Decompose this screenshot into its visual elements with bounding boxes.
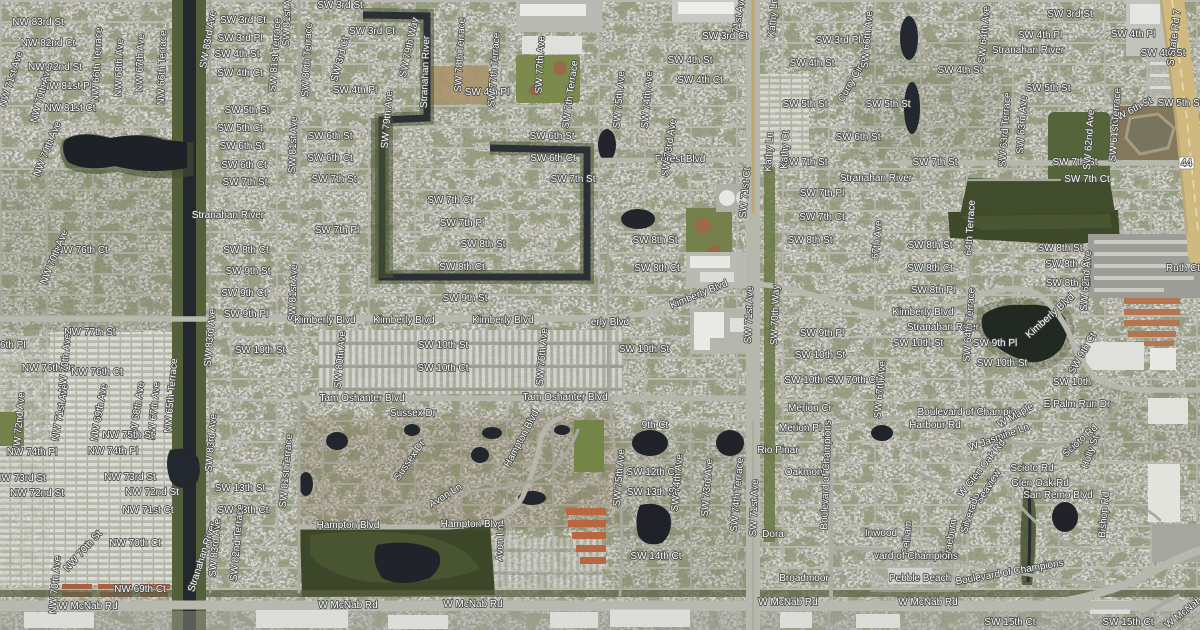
svg-text:SW 70th Ct: SW 70th Ct: [827, 375, 878, 386]
svg-text:SW 3rd Ct: SW 3rd Ct: [220, 15, 266, 26]
svg-text:SW 4th St: SW 4th St: [789, 58, 834, 69]
svg-text:Kimberly Blvd: Kimberly Blvd: [373, 315, 434, 326]
svg-text:SW 5th St: SW 5th St: [1025, 83, 1070, 94]
svg-text:NW 82nd Ct: NW 82nd Ct: [21, 38, 76, 49]
svg-text:NW 68th Ave: NW 68th Ave: [113, 38, 126, 97]
svg-text:Merion Pl: Merion Pl: [779, 423, 821, 434]
svg-text:SW 70th Way: SW 70th Way: [769, 284, 782, 345]
svg-text:Harbour Rd: Harbour Rd: [909, 420, 961, 431]
svg-text:SW 15th Ct: SW 15th Ct: [1102, 617, 1153, 628]
svg-text:SW 71st Ave: SW 71st Ave: [743, 286, 756, 344]
svg-text:SW 5th St: SW 5th St: [1157, 98, 1200, 109]
svg-text:76th Pl: 76th Pl: [0, 340, 26, 351]
svg-text:W McNab Rd: W McNab Rd: [898, 597, 957, 608]
svg-text:NW 72nd St: NW 72nd St: [10, 488, 64, 499]
svg-text:SW 6th Ct: SW 6th Ct: [530, 153, 576, 164]
svg-text:NW 74th Pl: NW 74th Pl: [88, 446, 139, 457]
svg-text:Tam Oshanter Blvd: Tam Oshanter Blvd: [319, 393, 404, 404]
svg-text:Glen Oak Rd: Glen Oak Rd: [1011, 478, 1069, 489]
svg-text:SW 4th Pl: SW 4th Pl: [1018, 30, 1062, 41]
svg-text:NW 71st Ct: NW 71st Ct: [122, 505, 173, 516]
svg-text:SW 5th St: SW 5th St: [782, 99, 827, 110]
svg-text:NW 72nd St: NW 72nd St: [125, 487, 179, 498]
svg-text:Kathy Ct: Kathy Ct: [779, 130, 792, 169]
svg-text:SW 12th Ct: SW 12th Ct: [626, 467, 677, 478]
svg-text:Stranahan River: Stranahan River: [840, 173, 913, 184]
svg-text:erly Blvd: erly Blvd: [591, 317, 629, 328]
svg-text:W McNab Rd: W McNab Rd: [758, 597, 817, 608]
svg-text:W McNab Rd: W McNab Rd: [58, 601, 117, 612]
svg-text:NW 83rd St: NW 83rd St: [12, 17, 64, 28]
svg-text:SW 8th Pl: SW 8th Pl: [911, 285, 955, 296]
svg-text:W McNab Rd: W McNab Rd: [318, 600, 377, 611]
svg-text:SW 7th St: SW 7th St: [912, 157, 957, 168]
svg-text:NW 67th Ave: NW 67th Ave: [134, 33, 147, 92]
svg-text:SW 8th St: SW 8th St: [907, 240, 952, 251]
svg-text:SW 8th St: SW 8th St: [632, 235, 677, 246]
svg-text:NW 70th Ct: NW 70th Ct: [109, 538, 161, 549]
svg-text:Sussex Dr: Sussex Dr: [390, 408, 437, 419]
svg-text:SW 10th St: SW 10th St: [619, 344, 670, 355]
svg-text:Kimberly Blvd: Kimberly Blvd: [892, 307, 953, 318]
svg-text:SW 10th St: SW 10th St: [795, 350, 846, 361]
svg-text:Broadmoor: Broadmoor: [779, 573, 829, 584]
svg-text:SW 10th St: SW 10th St: [418, 340, 469, 351]
svg-text:NW 69th Ct: NW 69th Ct: [114, 584, 166, 595]
svg-text:SW 4th St: SW 4th St: [667, 55, 712, 66]
svg-text:Inwood: Inwood: [865, 528, 897, 539]
svg-text:SW 3rd Pl: SW 3rd Pl: [815, 35, 860, 46]
svg-text:SW 7th Pl: SW 7th Pl: [440, 218, 484, 229]
svg-text:SW 8th St: SW 8th St: [787, 235, 832, 246]
svg-text:SW 81st Ave: SW 81st Ave: [287, 264, 300, 322]
svg-text:SW 13th St: SW 13th St: [215, 483, 266, 494]
svg-text:SW 7th St: SW 7th St: [222, 177, 267, 188]
svg-text:SW 6th Ct: SW 6th Ct: [307, 153, 353, 164]
svg-text:SW 9th St: SW 9th St: [442, 293, 487, 304]
svg-text:SW 14th Ct: SW 14th Ct: [630, 551, 681, 562]
svg-text:SW 15th Ct: SW 15th Ct: [984, 617, 1035, 628]
svg-text:Kathy Ln: Kathy Ln: [763, 132, 776, 172]
svg-text:SW 9th Pl: SW 9th Pl: [973, 338, 1017, 349]
svg-text:SW 4th Pl: SW 4th Pl: [1111, 29, 1155, 40]
svg-text:SW 4th Ct: SW 4th Ct: [677, 75, 723, 86]
svg-text:SW 7th Pl: SW 7th Pl: [800, 188, 844, 199]
svg-text:SW 9th Pl: SW 9th Pl: [224, 309, 268, 320]
svg-text:SW 10th St: SW 10th St: [893, 338, 944, 349]
svg-text:SW 3rd St: SW 3rd St: [1047, 9, 1093, 20]
svg-text:SW 7th St: SW 7th St: [311, 174, 356, 185]
svg-text:Dora: Dora: [762, 529, 784, 540]
svg-text:NW 75th St: NW 75th St: [102, 430, 153, 441]
svg-text:Scioto Rd: Scioto Rd: [1010, 463, 1053, 474]
svg-text:Hampton Blvd: Hampton Blvd: [317, 520, 380, 531]
svg-text:SW 3rd Ct: SW 3rd Ct: [349, 26, 395, 37]
svg-text:SW 9th Pl: SW 9th Pl: [800, 328, 844, 339]
svg-text:SW 9th St: SW 9th St: [225, 266, 270, 277]
svg-text:SW 6th St: SW 6th St: [529, 131, 574, 142]
svg-text:NW 73rd St: NW 73rd St: [104, 472, 156, 483]
svg-text:SW 8th St: SW 8th St: [460, 239, 505, 250]
svg-text:E Palm Run Dr: E Palm Run Dr: [1044, 399, 1111, 410]
svg-text:SW 4th St: SW 4th St: [214, 49, 259, 60]
svg-text:vard of Champions: vard of Champions: [874, 551, 958, 562]
svg-text:SW 8th Ct: SW 8th Ct: [907, 263, 953, 274]
svg-text:44: 44: [1181, 158, 1193, 169]
svg-text:Kimberly Blvd: Kimberly Blvd: [472, 315, 533, 326]
svg-text:Hampton Blvd: Hampton Blvd: [441, 519, 504, 530]
svg-text:Tam Oshanter Blvd: Tam Oshanter Blvd: [522, 392, 607, 403]
svg-text:SW 9th Ct: SW 9th Ct: [221, 288, 267, 299]
svg-text:SW 6th St: SW 6th St: [219, 141, 264, 152]
svg-text:Kimberly Blvd: Kimberly Blvd: [294, 315, 355, 326]
svg-text:SW 3rd St: SW 3rd St: [317, 0, 363, 11]
svg-text:SW 81st Ave: SW 81st Ave: [287, 116, 300, 174]
svg-text:SW 6th Ct: SW 6th Ct: [221, 160, 267, 171]
svg-text:SW 8th Ct: SW 8th Ct: [439, 262, 485, 273]
svg-text:SW 7th Ct: SW 7th Ct: [1064, 174, 1110, 185]
svg-text:NW 73rd St: NW 73rd St: [0, 473, 46, 484]
svg-text:SW 5th St: SW 5th St: [865, 99, 910, 110]
svg-text:Stranahan River: Stranahan River: [192, 210, 265, 221]
svg-text:SW 8th St: SW 8th St: [1037, 243, 1082, 254]
svg-text:NW 76th Ct: NW 76th Ct: [71, 367, 123, 378]
svg-text:SW 4th St: SW 4th St: [1140, 48, 1185, 59]
svg-text:SW 5th St: SW 5th St: [224, 105, 269, 116]
svg-text:SW 71st Ave: SW 71st Ave: [748, 479, 761, 537]
svg-text:Rio Pinar: Rio Pinar: [757, 445, 799, 456]
svg-text:Merion Cr: Merion Cr: [788, 403, 833, 414]
svg-text:SW 3rd Pl: SW 3rd Pl: [217, 33, 262, 44]
svg-text:Oakmont: Oakmont: [785, 467, 826, 478]
svg-text:SW 6th St: SW 6th St: [835, 132, 880, 143]
svg-text:SW 10th St: SW 10th St: [235, 345, 286, 356]
svg-text:SW 7th Ct: SW 7th Ct: [427, 195, 473, 206]
svg-text:Avon Ln: Avon Ln: [494, 524, 506, 561]
svg-text:San Remo Blvd: San Remo Blvd: [1023, 490, 1092, 501]
svg-text:SW 4th Pl: SW 4th Pl: [333, 85, 377, 96]
svg-text:Pebble Beach: Pebble Beach: [889, 573, 951, 584]
svg-text:NW 74th Pl: NW 74th Pl: [7, 447, 58, 458]
svg-text:SW 7th Pl: SW 7th Pl: [315, 225, 359, 236]
svg-text:W McNab Rd: W McNab Rd: [443, 599, 502, 610]
svg-text:NW 81st Ct: NW 81st Ct: [44, 103, 95, 114]
svg-text:SW 8th Ct: SW 8th Ct: [634, 263, 680, 274]
svg-text:Ruth Ct: Ruth Ct: [1166, 263, 1200, 274]
svg-text:SW 8th Ct: SW 8th Ct: [223, 245, 269, 256]
svg-text:SW 4th Ct: SW 4th Ct: [217, 68, 263, 79]
svg-text:SW 10th Ct: SW 10th Ct: [417, 363, 468, 374]
svg-text:SW 7th St: SW 7th St: [550, 174, 595, 185]
svg-text:SW 7th Ct: SW 7th Ct: [799, 212, 845, 223]
svg-text:NW 82nd St: NW 82nd St: [28, 62, 82, 73]
svg-text:9th Ct: 9th Ct: [642, 420, 669, 431]
svg-text:SW 10th: SW 10th: [1053, 377, 1091, 388]
svg-text:SW 4th St: SW 4th St: [937, 65, 982, 76]
svg-text:SW 5th Ct: SW 5th Ct: [217, 123, 263, 134]
svg-text:SW 10th St: SW 10th St: [977, 358, 1028, 369]
svg-text:Stranahan River: Stranahan River: [992, 45, 1065, 56]
svg-text:SW 6th St: SW 6th St: [307, 131, 352, 142]
